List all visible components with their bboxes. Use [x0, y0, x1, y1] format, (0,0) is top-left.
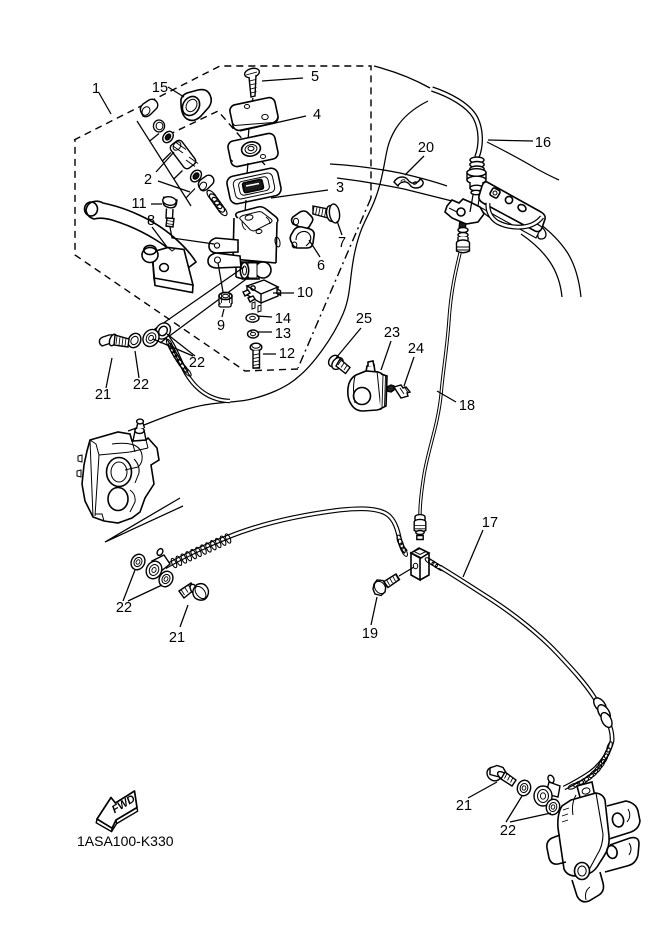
- svg-text:21: 21: [95, 387, 111, 403]
- svg-text:15: 15: [152, 80, 168, 96]
- svg-text:22: 22: [189, 355, 205, 371]
- svg-text:16: 16: [535, 135, 551, 151]
- svg-text:3: 3: [336, 180, 344, 196]
- svg-text:11: 11: [131, 196, 146, 212]
- svg-text:22: 22: [116, 600, 132, 616]
- svg-text:1: 1: [92, 81, 100, 97]
- svg-text:5: 5: [311, 69, 319, 85]
- svg-text:22: 22: [500, 823, 516, 839]
- svg-text:9: 9: [217, 318, 225, 334]
- svg-text:21: 21: [456, 798, 472, 814]
- svg-text:22: 22: [133, 377, 149, 393]
- svg-text:19: 19: [362, 626, 378, 642]
- svg-text:13: 13: [275, 326, 291, 342]
- svg-text:8: 8: [147, 213, 155, 229]
- svg-text:4: 4: [313, 107, 321, 123]
- svg-text:12: 12: [279, 346, 295, 362]
- svg-text:1ASA100-K330: 1ASA100-K330: [77, 833, 174, 849]
- svg-text:14: 14: [275, 311, 291, 327]
- svg-text:20: 20: [418, 140, 434, 156]
- svg-text:24: 24: [408, 341, 424, 357]
- svg-text:17: 17: [482, 515, 498, 531]
- svg-text:6: 6: [317, 258, 325, 274]
- svg-text:18: 18: [459, 398, 475, 414]
- svg-text:25: 25: [356, 311, 372, 327]
- svg-text:23: 23: [384, 325, 400, 341]
- svg-text:7: 7: [338, 235, 346, 251]
- svg-text:10: 10: [297, 285, 313, 301]
- svg-text:2: 2: [144, 172, 152, 188]
- svg-text:21: 21: [169, 630, 185, 646]
